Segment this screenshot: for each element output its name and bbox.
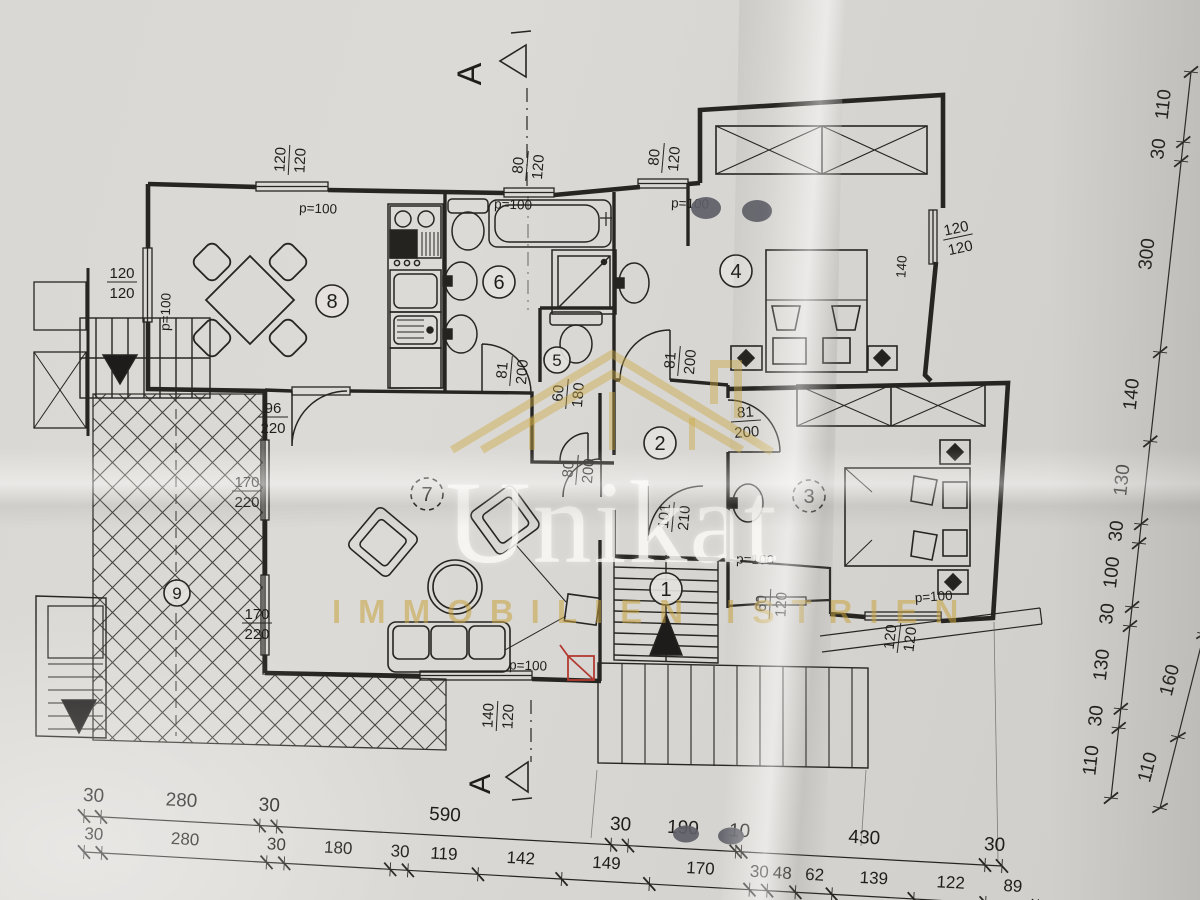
dim-value-label: 142 [506,848,535,869]
dim-pair-label: 140120 [479,700,518,732]
main-staircase [598,555,868,768]
dim-value-label: 30 [1085,704,1108,727]
dim-value-label: 30 [1105,519,1128,542]
room-number-8: 8 [316,285,348,317]
annotation-label: p=100 [736,551,774,567]
dim-value-label: 30 [609,814,631,836]
dim-pair-label: 81200 [493,355,532,388]
floor-plan-drawing: 3028030590301901043030302803018030119142… [0,0,1200,900]
kitchen-sink-icon [390,270,441,312]
bathroom-fixtures [443,199,649,363]
dim-value-label: 430 [848,827,881,850]
dim-value-label: 30 [1096,602,1119,625]
section-marker-triangle [506,762,528,792]
dim-value-label: 590 [429,804,462,827]
svg-text:210: 210 [675,505,694,531]
dim-value-label: 48 [772,863,792,883]
room-number-3: 3 [793,480,825,512]
dim-value-label: 30 [1147,137,1170,160]
annotation-label: p=100 [509,657,547,673]
dim-value-label: 280 [165,789,198,812]
chair-icon [267,241,309,283]
dim-value-label: 160 [1156,662,1184,698]
svg-text:200: 200 [681,349,700,375]
room-number-1: 1 [650,573,682,605]
chair-icon [191,317,233,359]
dimension-chain-right-outer: 11030300140130301003013030110 [1079,66,1198,803]
svg-text:5: 5 [552,351,561,370]
room-number-4: 4 [720,255,752,287]
annotation-label: A [451,62,489,85]
dim-value-label: 130 [1090,648,1114,682]
dim-pair-label: 120120 [880,621,920,655]
dim-value-label: 140 [1120,377,1144,411]
dimension-chain-right-inner: 160110 [1134,629,1200,812]
dim-pair-label: 60120 [752,588,791,620]
svg-text:120: 120 [665,146,684,172]
svg-text:3: 3 [803,486,814,508]
annotation-label: p=100 [494,196,532,212]
tv-sightlines [505,545,566,650]
svg-text:80: 80 [559,460,577,478]
dining-table-icon [206,256,294,344]
dim-pair-label: 80120 [645,142,684,175]
left-edge-structures [34,268,88,436]
annotation-label: 140 [893,255,910,279]
punch-hole [673,826,699,843]
dimension-chain-bottom-lower: 30280301803011914214917030486213912289 [78,824,1044,900]
room-number-7: 7 [411,478,443,510]
svg-text:180: 180 [569,382,588,408]
room-number-2: 2 [644,427,676,459]
photographed-floor-plan: { "watermark": { "brand": "Unikat", "tag… [0,0,1200,900]
svg-text:200: 200 [579,458,598,484]
door-arcs [292,330,780,541]
dim-value-label: 30 [390,841,410,861]
svg-text:170: 170 [244,606,269,623]
dim-pair-label: 81200 [661,345,700,378]
svg-text:6: 6 [493,272,504,294]
dim-value-label: 122 [936,872,965,893]
svg-text:140: 140 [479,703,497,729]
dim-value-label: 180 [324,838,353,859]
livingroom-furniture [346,484,599,672]
exterior-stairs-top [80,318,210,398]
dim-value-label: 100 [1100,556,1124,590]
armchair-icon [346,505,419,578]
section-line [500,31,532,800]
dim-value-label: 280 [170,829,199,850]
dim-pair-label: 60180 [549,378,588,411]
svg-text:120: 120 [529,154,548,180]
svg-text:120: 120 [291,148,309,174]
sofa-icon [388,622,510,672]
punch-hole [691,197,721,219]
dining-table-set [191,241,309,359]
svg-text:220: 220 [244,626,269,643]
dim-pair-label: 101210 [655,501,694,534]
room-number-6: 6 [483,266,515,298]
dim-value-label: 170 [686,858,715,879]
dim-value-label: 110 [1152,88,1176,120]
svg-text:1: 1 [660,579,671,601]
room-number-9: 9 [164,580,190,606]
svg-text:80: 80 [509,156,527,174]
kitchen-unit [388,204,443,388]
svg-text:8: 8 [326,291,337,313]
svg-text:60: 60 [753,595,771,613]
svg-text:81: 81 [493,361,511,379]
chair-icon [191,241,233,283]
svg-text:80: 80 [645,148,663,166]
annotation-label: p=100 [299,200,337,216]
svg-text:220: 220 [234,494,259,511]
dim-value-label: 139 [859,868,888,889]
svg-text:4: 4 [730,261,741,283]
punch-hole [718,828,744,845]
dim-pair-label: 120120 [271,144,310,176]
svg-text:200: 200 [513,359,532,385]
coffee-table-icon [428,560,482,614]
svg-text:120: 120 [942,218,970,240]
dim-pair-label: 120120 [107,265,137,302]
lamp-icon [738,350,754,366]
armchair-icon [469,484,542,557]
svg-text:81: 81 [736,403,754,421]
dim-value-label: 30 [266,834,286,854]
lamp-icon [947,444,963,460]
lamp-icon [874,350,890,366]
svg-text:120: 120 [109,265,134,282]
double-bed-icon [766,250,867,372]
dim-pair-label: 80120 [509,150,548,183]
svg-text:120: 120 [499,704,517,730]
svg-text:120: 120 [881,624,901,651]
svg-text:81: 81 [661,351,679,369]
dim-pair-label: 80200 [559,454,598,487]
dim-pair-label: 120120 [940,217,977,259]
dim-value-label: 30 [84,824,104,844]
svg-text:120: 120 [109,285,134,302]
toilet-icon [448,199,488,213]
svg-text:220: 220 [260,420,285,437]
dim-value-label: 130 [1110,463,1134,497]
dim-value-label: 110 [1079,744,1103,776]
dim-value-label: 89 [1003,876,1023,896]
dim-value-label: 119 [430,844,458,865]
annotation-label: p=100 [914,588,953,606]
dim-value-label: 62 [805,865,825,885]
svg-text:101: 101 [655,503,674,529]
room-number-5: 5 [544,347,570,373]
punch-hole [742,200,772,222]
dim-value-label: 149 [592,853,621,874]
svg-text:120: 120 [271,147,289,173]
dim-value-label: 30 [983,834,1005,856]
dim-value-label: 300 [1135,237,1159,271]
dim-value-label: 30 [258,795,280,817]
svg-text:9: 9 [172,584,181,603]
dim-value-label: 30 [749,862,769,882]
annotation-label: A [464,774,497,794]
dim-value-label: 110 [1134,750,1162,785]
svg-text:96: 96 [265,400,282,417]
svg-text:7: 7 [421,484,432,506]
section-marker-triangle [500,45,526,77]
electrical-symbol [560,645,594,680]
tv-icon [564,594,599,625]
chair-icon [267,317,309,359]
stairs-down-arrow [103,355,137,384]
svg-text:2: 2 [654,433,665,455]
bedroom4-furniture [716,126,927,372]
svg-text:200: 200 [734,423,760,442]
svg-text:170: 170 [234,474,259,491]
svg-text:120: 120 [946,237,974,259]
witness-lines [591,622,998,860]
dim-value-label: 30 [82,785,104,807]
svg-text:120: 120 [772,592,790,618]
svg-text:120: 120 [900,626,920,653]
annotation-label: p=100 [157,293,173,331]
svg-text:60: 60 [549,384,567,402]
